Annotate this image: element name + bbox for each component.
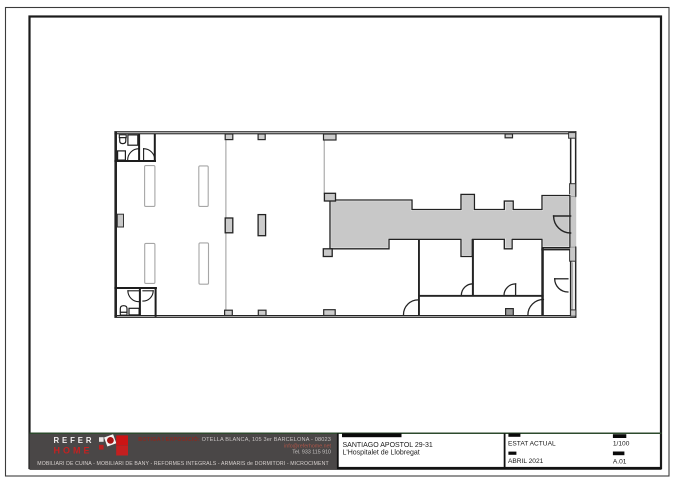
svg-text:ESTAT ACTUAL: ESTAT ACTUAL <box>508 440 556 447</box>
svg-text:MOBILIARI DE CUINA - MOBILIARI: MOBILIARI DE CUINA - MOBILIARI DE BANY -… <box>37 461 329 467</box>
svg-text:ABRIL 2021: ABRIL 2021 <box>508 458 544 465</box>
svg-text:HOME: HOME <box>54 446 93 456</box>
svg-text:A.01: A.01 <box>613 459 627 466</box>
svg-text:L'Hospitalet de Llobregat: L'Hospitalet de Llobregat <box>343 449 420 456</box>
svg-text:BOTIGA I EXPOSICIÓ: OTELLA BLA: BOTIGA I EXPOSICIÓ: OTELLA BLANCA, 105 3… <box>138 435 331 443</box>
svg-text:1/100: 1/100 <box>613 441 630 448</box>
svg-text:Tel. 933 115 910: Tel. 933 115 910 <box>292 450 331 456</box>
svg-text:REFER: REFER <box>54 436 95 445</box>
svg-text:info@referhome.net: info@referhome.net <box>284 443 331 449</box>
svg-text:SANTIAGO APOSTOL 29-31: SANTIAGO APOSTOL 29-31 <box>343 442 433 449</box>
